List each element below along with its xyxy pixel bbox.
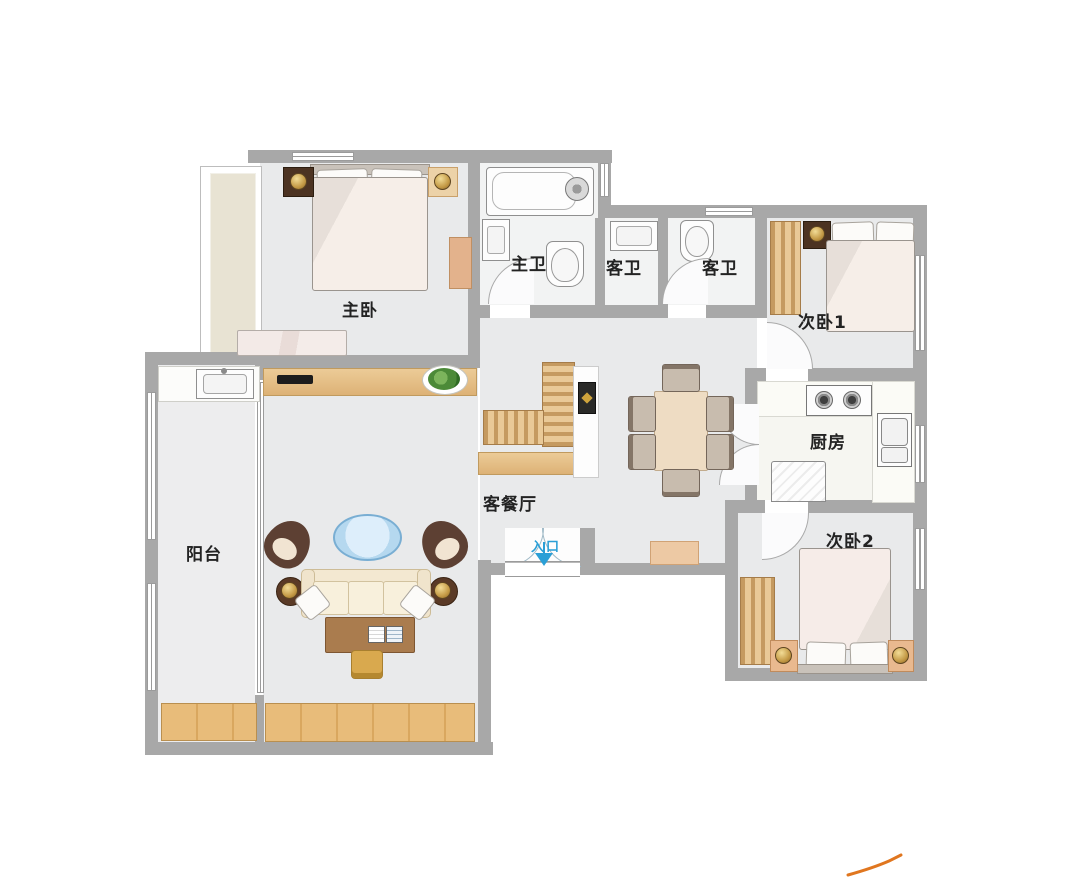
wall [725,512,738,681]
artwork-diamond-icon [581,392,592,403]
room-label-guest-bath-b: 客卫 [702,254,738,279]
bedroom-bench [237,330,347,356]
nightstand [770,640,798,672]
dining-chair [628,434,656,470]
nightstand [888,640,914,672]
floor-plan: 主卧 主卫 客卫 客卫 次卧1 厨房 [0,0,1080,889]
window [147,392,156,540]
bathtub-basin [492,172,576,210]
wall [478,560,491,755]
room-label-master-bath: 主卫 [511,250,547,275]
storage-shelf [483,410,544,445]
room-label-bedroom1: 次卧1 [798,308,847,333]
wall [745,368,757,404]
plant-icon [428,368,460,390]
dining-chair [628,396,656,432]
armchair-cushion [268,533,301,564]
room-label-guest-bath-a: 客卫 [606,254,642,279]
medallion-icon [290,173,307,190]
medallion-icon [775,647,792,664]
nightstand [428,167,458,197]
balcony-sliding-door [257,382,264,693]
dining-table [654,391,708,471]
coffee-table [333,514,402,561]
bathtub [486,167,594,216]
room-label-kitchen: 厨房 [810,428,846,453]
dining-chair [706,434,734,470]
toilet-bowl [551,248,579,282]
room-label-living-dining: 客餐厅 [483,490,537,515]
window [600,163,609,197]
window [292,152,354,161]
books-icon [368,626,385,643]
washbasin [482,219,510,261]
window [915,255,925,351]
burner-icon [815,391,833,409]
artwork [578,382,596,414]
sink-basin [881,418,908,446]
desk [325,617,415,653]
storage-shelf [542,362,575,447]
fridge [771,461,826,502]
side-cabinet [449,237,472,289]
toilet [546,241,584,287]
window [915,528,925,590]
faucet-icon [221,368,227,374]
window [915,425,925,483]
medallion-icon [434,173,451,190]
desk-chair [351,650,383,679]
dining-chair [706,396,734,432]
nightstand [283,167,314,197]
bed-headboard [797,664,893,674]
entry-arrow-icon [535,553,553,566]
wood-deck [265,703,475,742]
wall [478,563,508,575]
wardrobe [770,221,801,315]
sink-basin [881,447,908,463]
wall [598,205,927,218]
wall [755,218,767,318]
bay-window-panel [210,173,256,355]
wood-deck [161,703,257,741]
shoe-cabinet [650,541,699,565]
basin [616,226,652,246]
wall [145,742,493,755]
burner-icon [843,391,861,409]
medallion-icon [809,226,825,242]
medallion-icon [281,582,298,599]
medallion-icon [892,647,909,664]
wall [595,218,605,318]
stove [806,385,872,416]
window [705,207,753,216]
washbasin [610,221,658,251]
books-icon [386,626,403,643]
kitchen-sink [877,413,912,467]
tv [277,375,313,384]
room-label-master-bedroom: 主卧 [342,296,378,321]
wall [745,484,757,502]
sofa [348,581,384,615]
basin [487,226,505,254]
wall [808,368,927,381]
basin [203,374,247,394]
logo-swoosh-icon [845,852,909,878]
wall [530,305,668,318]
toilet-bowl [685,226,709,257]
dining-chair [662,469,700,497]
armchair-cushion [431,533,464,564]
window [147,583,156,691]
double-bed [312,177,428,291]
dining-chair [662,364,700,392]
medallion-icon [434,582,451,599]
shower-head-icon [565,177,589,201]
wall [757,368,766,381]
room-label-balcony: 阳台 [186,540,222,565]
laundry-sink [196,369,254,399]
wall [706,305,767,318]
storage-base [478,452,575,475]
room-label-bedroom2: 次卧2 [826,527,875,552]
double-bed [799,548,891,650]
